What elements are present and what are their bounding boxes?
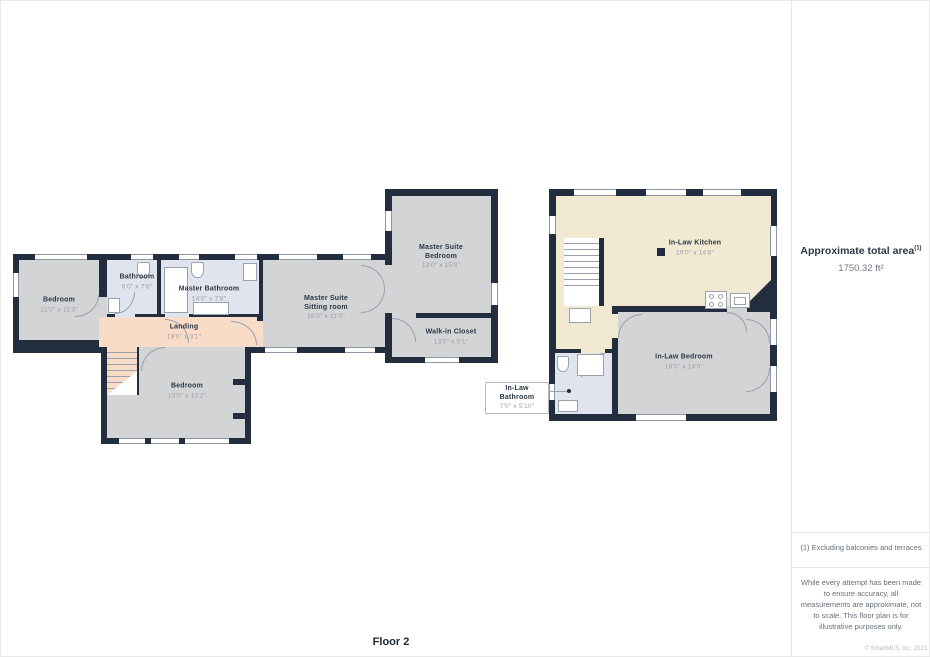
footnote-text: (1) Excluding balconies and terraces	[792, 543, 930, 552]
room-label-bedroom-1: Bedroom 12'0" x 11'3"	[40, 296, 78, 314]
staircase-landing	[564, 288, 599, 306]
room-label-bedroom-2: Bedroom 13'0" x 12'2"	[168, 382, 206, 400]
room-label-landing: Landing 19'0" x 3'1"	[167, 323, 201, 341]
window	[770, 226, 777, 256]
info-sidebar: Approximate total area(1) 1750.32 ft² (1…	[791, 1, 930, 656]
window	[770, 366, 777, 392]
stove-icon	[705, 291, 727, 309]
window	[265, 347, 297, 353]
total-area-value: 1750.32 ft²	[792, 263, 930, 274]
window	[151, 438, 179, 444]
vanity-icon	[193, 302, 229, 315]
disclaimer-text: While every attempt has been made to ens…	[798, 578, 924, 632]
window	[425, 357, 459, 363]
room-label-inlaw-kitchen: In-Law Kitchen 29'0" x 14'8"	[669, 239, 722, 257]
sink-icon	[243, 263, 257, 281]
staircase-cut	[107, 371, 137, 395]
wall-stub	[233, 413, 245, 419]
wall-partition	[599, 238, 604, 306]
wall-stub	[233, 379, 245, 385]
room-label-inlaw-bedroom: In-Law Bedroom 19'0" x 14'0"	[655, 353, 713, 371]
window	[636, 414, 686, 421]
room-label-bathroom: Bathroom 6'0" x 7'8"	[120, 273, 155, 291]
wall-partition	[161, 314, 165, 317]
cabinet-icon	[558, 400, 578, 412]
toilet-icon	[557, 356, 569, 372]
sink-icon	[577, 354, 604, 376]
window	[385, 211, 392, 231]
room-label-master-bathroom: Master Bathroom 14'0" x 7'8"	[179, 285, 240, 303]
window	[185, 438, 229, 444]
closet-icon	[569, 308, 591, 323]
floor-title: Floor 2	[373, 636, 410, 648]
door-opening	[99, 297, 107, 317]
wall-partition	[157, 254, 161, 314]
window	[549, 216, 556, 234]
window	[345, 347, 375, 353]
window	[235, 254, 257, 260]
window	[131, 254, 153, 260]
column	[657, 248, 665, 256]
callout-dot	[567, 389, 571, 393]
window	[179, 254, 199, 260]
window	[35, 254, 87, 260]
divider	[792, 567, 930, 568]
window	[13, 273, 19, 297]
wall-partition	[137, 347, 139, 395]
wall-partition	[555, 349, 581, 353]
kitchen-sink-icon	[730, 293, 750, 308]
wall-partition	[107, 314, 115, 317]
door-opening	[392, 313, 416, 318]
window	[574, 189, 616, 196]
sink-icon	[108, 298, 120, 313]
room-label-master-bedroom: Master Suite Bedroom 13'0" x 15'8"	[419, 244, 463, 270]
room-label-walk-in-closet: Walk-in Closet 13'0" x 5'1"	[426, 328, 477, 346]
door-opening	[385, 265, 392, 313]
room-label-sitting-room: Master Suite Sitting room 16'0" x 11'0"	[304, 295, 348, 321]
floor-plan-page: Bedroom 12'0" x 11'3" Bathroom 6'0" x 7'…	[0, 0, 930, 657]
door-opening	[257, 321, 263, 347]
total-area-title: Approximate total area(1)	[792, 245, 930, 257]
window	[343, 254, 371, 260]
window	[646, 189, 686, 196]
copyright-text: © SmartMLS, Inc. 2023	[865, 646, 927, 652]
footnote-marker: (1)	[914, 246, 921, 252]
room-callout-inlaw-bathroom: In-Law Bathroom 7'0" x 5'10"	[485, 382, 549, 414]
window	[703, 189, 741, 196]
divider	[792, 532, 930, 533]
toilet-icon	[191, 262, 204, 278]
wall-partition	[605, 349, 612, 353]
window	[491, 283, 498, 305]
window	[549, 384, 555, 400]
staircase	[564, 238, 599, 288]
window	[279, 254, 317, 260]
window	[119, 438, 145, 444]
wall-partition	[135, 314, 157, 317]
door-opening	[612, 314, 618, 338]
window	[770, 319, 777, 345]
